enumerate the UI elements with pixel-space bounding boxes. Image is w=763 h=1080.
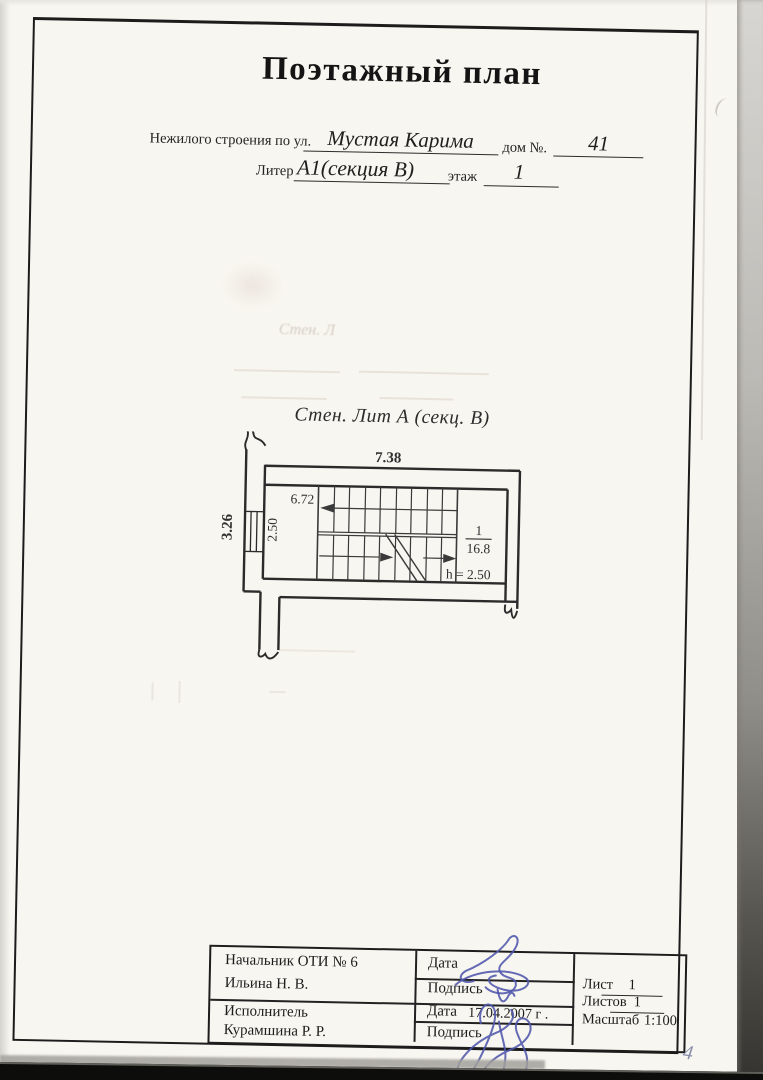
house-value: 41 bbox=[588, 131, 609, 156]
scan-right-edge bbox=[737, 0, 763, 1080]
bleed-mark bbox=[178, 681, 180, 703]
bleed-mark bbox=[151, 683, 153, 701]
liter-label: Литер bbox=[256, 163, 294, 181]
floor-value: 1 bbox=[513, 160, 524, 185]
bleed-line bbox=[234, 369, 340, 373]
bleed-line bbox=[379, 397, 453, 400]
page-frame: Поэтажный план Нежилого строения по ул. … bbox=[12, 17, 698, 1054]
dim-inner-width: 6.72 bbox=[290, 491, 314, 506]
table-line bbox=[414, 951, 418, 1042]
bleed-line bbox=[359, 371, 489, 375]
liter-value: А1(секция В) bbox=[297, 155, 415, 182]
scale-value: 1:100 bbox=[644, 1012, 677, 1030]
handwritten-page-number: 4 bbox=[681, 1041, 694, 1065]
executor-role: Исполнитель bbox=[224, 1003, 308, 1022]
house-underline bbox=[553, 155, 643, 158]
dim-left-height: 3.26 bbox=[220, 513, 237, 540]
dim-inner-height: 2.50 bbox=[265, 518, 280, 542]
ceiling-height: h = 2.50 bbox=[446, 566, 491, 582]
floor-underline bbox=[484, 185, 559, 188]
room-number: 1 bbox=[475, 523, 482, 538]
plan-caption: Стен. Лит А (секц. В) bbox=[294, 404, 490, 430]
bleed-mark bbox=[269, 691, 285, 693]
scan-left-shadow bbox=[0, 0, 10, 1080]
house-label: дом №. bbox=[502, 139, 547, 157]
paper-fold-line bbox=[701, 0, 708, 440]
official-name: Ильина Н. В. bbox=[224, 975, 308, 994]
floor-plan-drawing: 7.38 6.72 3.26 2.50 1 16.8 h = 2.50 bbox=[212, 431, 535, 677]
window bbox=[244, 511, 264, 551]
paper-crease-mark bbox=[713, 96, 733, 120]
page-title: Поэтажный план bbox=[262, 51, 543, 94]
stair-treads bbox=[317, 486, 458, 583]
table-line bbox=[571, 954, 575, 1045]
official-role: Начальник ОТИ № 6 bbox=[225, 952, 358, 972]
room-area: 16.8 bbox=[466, 541, 490, 556]
executor-name: Курамшина Р. Р. bbox=[224, 1022, 327, 1041]
floor-label: этаж bbox=[448, 168, 478, 186]
building-label: Нежилого строения по ул. bbox=[149, 130, 311, 150]
scan-top-shadow bbox=[0, 0, 763, 6]
dim-top-width: 7.38 bbox=[375, 450, 402, 467]
bleed-line bbox=[241, 396, 326, 399]
ink-smudge bbox=[221, 262, 284, 309]
ghost-caption: Стен. Л bbox=[279, 321, 336, 340]
street-value: Мустая Карима bbox=[327, 126, 474, 154]
sheets-value: 1 bbox=[610, 994, 664, 1014]
scale-label: Масштаб bbox=[582, 1011, 640, 1029]
scanned-document: Поэтажный план Нежилого строения по ул. … bbox=[0, 0, 763, 1080]
liter-underline bbox=[294, 180, 450, 184]
